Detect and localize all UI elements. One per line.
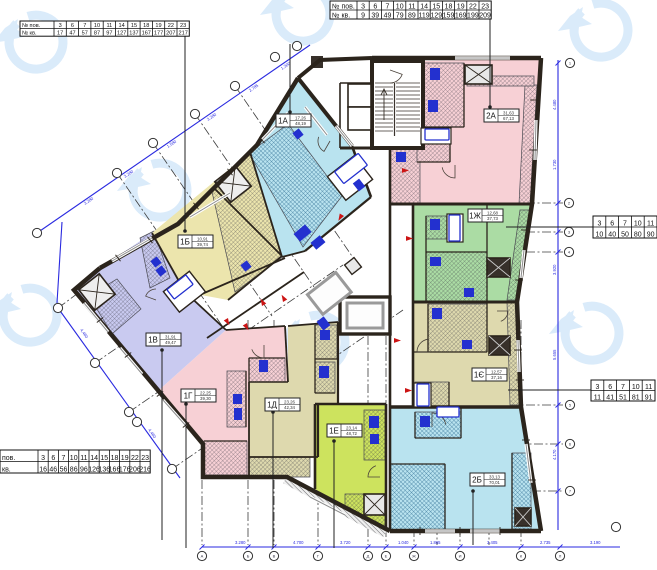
svg-text:47: 47 [69,31,75,37]
svg-text:10: 10 [70,455,78,462]
svg-text:1В: 1В [148,335,158,344]
svg-text:7: 7 [83,23,86,29]
svg-text:10: 10 [632,384,640,391]
svg-text:79: 79 [396,13,404,20]
svg-text:10: 10 [94,23,100,29]
svg-text:Б: Б [247,553,250,558]
svg-text:14: 14 [90,455,98,462]
svg-text:6: 6 [608,384,612,391]
svg-text:22: 22 [131,455,139,462]
svg-text:16: 16 [39,467,47,474]
svg-text:3.280: 3.280 [235,540,246,545]
svg-text:23,26: 23,26 [284,399,296,404]
svg-text:49,47: 49,47 [165,340,177,345]
svg-text:№ кв.: № кв. [332,13,350,20]
svg-text:3.405: 3.405 [487,540,498,545]
svg-text:7: 7 [62,455,66,462]
svg-text:И: И [459,553,462,558]
svg-text:39,30: 39,30 [200,396,212,401]
svg-text:5.655: 5.655 [552,349,557,360]
svg-text:Д: Д [367,553,370,558]
svg-text:50: 50 [621,232,629,239]
svg-text:10,91: 10,91 [197,236,209,241]
svg-text:23,14: 23,14 [346,425,358,430]
svg-text:11: 11 [80,455,87,462]
svg-text:15: 15 [432,4,440,11]
svg-text:37,16: 37,16 [491,375,503,380]
svg-text:37,73: 37,73 [487,216,499,221]
svg-text:10: 10 [396,4,404,11]
svg-text:15: 15 [131,23,137,29]
svg-text:42,34: 42,34 [284,405,296,410]
svg-text:39,74: 39,74 [197,242,209,247]
svg-text:В: В [273,553,276,558]
svg-text:57: 57 [82,31,88,37]
svg-text:7: 7 [621,384,625,391]
svg-text:19: 19 [121,455,129,462]
svg-text:14: 14 [420,4,428,11]
svg-text:Е: Е [385,553,388,558]
svg-text:3: 3 [595,384,599,391]
svg-text:3: 3 [41,455,45,462]
svg-text:11: 11 [645,384,652,391]
svg-text:56: 56 [60,467,68,474]
svg-text:87: 87 [94,31,100,37]
svg-text:86: 86 [70,467,78,474]
svg-text:А: А [201,553,204,558]
svg-text:12,57: 12,57 [491,369,503,374]
svg-text:23: 23 [141,455,149,462]
svg-text:4.700: 4.700 [293,540,304,545]
svg-text:1А: 1А [278,116,288,125]
svg-text:1Е: 1Е [329,426,339,435]
svg-text:49: 49 [384,13,392,20]
svg-text:1.730: 1.730 [552,159,557,170]
svg-text:4.480: 4.480 [552,99,557,110]
svg-text:127: 127 [117,31,126,37]
svg-text:1Д: 1Д [267,400,277,409]
svg-text:46: 46 [49,467,57,474]
svg-text:22,25: 22,25 [200,390,212,395]
svg-text:209: 209 [479,13,491,20]
svg-text:167: 167 [142,31,151,37]
svg-text:169: 169 [455,13,467,20]
svg-text:9: 9 [361,13,365,20]
svg-text:4.170: 4.170 [552,449,557,460]
svg-text:6: 6 [51,455,55,462]
svg-text:11: 11 [408,4,415,11]
svg-text:23: 23 [481,4,489,11]
svg-text:18: 18 [111,455,119,462]
svg-text:6: 6 [71,23,74,29]
svg-text:137: 137 [129,31,138,37]
svg-text:№ пов.: № пов. [22,23,41,29]
svg-text:48,19: 48,19 [295,121,307,126]
svg-text:177: 177 [154,31,163,37]
svg-text:3.190: 3.190 [590,540,601,545]
svg-text:12,68: 12,68 [487,210,499,215]
svg-text:89: 89 [408,13,416,20]
svg-text:3: 3 [59,23,62,29]
svg-text:2Б: 2Б [472,475,482,484]
svg-text:1.040: 1.040 [398,540,409,545]
svg-text:81: 81 [632,395,640,402]
svg-text:1Б: 1Б [180,237,190,246]
svg-text:67,13: 67,13 [503,116,515,121]
svg-text:216: 216 [139,467,151,474]
svg-text:207: 207 [166,31,175,37]
svg-text:7: 7 [623,221,627,228]
svg-text:70,01: 70,01 [489,480,501,485]
svg-text:39: 39 [371,13,379,20]
svg-text:10: 10 [596,232,604,239]
svg-text:14: 14 [119,23,125,29]
svg-text:1Г: 1Г [184,391,193,400]
svg-text:Л: Л [559,553,562,558]
svg-text:40: 40 [608,232,616,239]
svg-text:33,13: 33,13 [489,474,501,479]
svg-text:11: 11 [106,23,112,29]
svg-text:41: 41 [606,395,614,402]
svg-text:17,26: 17,26 [295,115,307,120]
svg-text:51: 51 [619,395,627,402]
svg-text:80: 80 [634,232,642,239]
svg-text:31,91: 31,91 [165,334,177,339]
svg-text:Ж: Ж [412,553,416,558]
svg-text:2А: 2А [486,111,496,120]
svg-text:№ кв.: № кв. [22,31,37,37]
svg-text:1Є: 1Є [474,370,484,379]
svg-text:18: 18 [445,4,453,11]
svg-text:11: 11 [647,221,654,228]
svg-text:96: 96 [80,467,88,474]
svg-text:97: 97 [106,31,112,37]
svg-text:10: 10 [634,221,642,228]
svg-text:129: 129 [430,13,442,20]
svg-text:31,63: 31,63 [503,110,515,115]
svg-text:1.865: 1.865 [430,540,441,545]
svg-text:3: 3 [597,221,601,228]
svg-text:19: 19 [155,23,161,29]
svg-text:19: 19 [457,4,465,11]
svg-text:1Ж: 1Ж [469,211,481,220]
svg-text:3.720: 3.720 [340,540,351,545]
svg-text:3.920: 3.920 [552,264,557,275]
svg-text:3: 3 [361,4,365,11]
svg-text:6: 6 [610,221,614,228]
svg-text:159: 159 [443,13,455,20]
svg-text:217: 217 [178,31,187,37]
svg-text:18: 18 [143,23,149,29]
svg-text:15: 15 [100,455,108,462]
svg-text:11: 11 [594,395,601,402]
svg-text:22: 22 [469,4,477,11]
svg-text:22: 22 [168,23,174,29]
svg-text:91: 91 [645,395,653,402]
svg-text:7: 7 [386,4,390,11]
svg-text:199: 199 [467,13,479,20]
svg-text:23: 23 [180,23,186,29]
svg-text:119: 119 [419,13,430,20]
svg-text:48,72: 48,72 [346,431,358,436]
svg-text:пов.: пов. [2,455,15,462]
svg-text:6: 6 [373,4,377,11]
svg-text:2.735: 2.735 [540,540,551,545]
svg-text:№ пов.: № пов. [332,4,355,11]
svg-text:кв.: кв. [2,467,11,474]
svg-text:17: 17 [57,31,63,37]
svg-text:90: 90 [647,232,655,239]
